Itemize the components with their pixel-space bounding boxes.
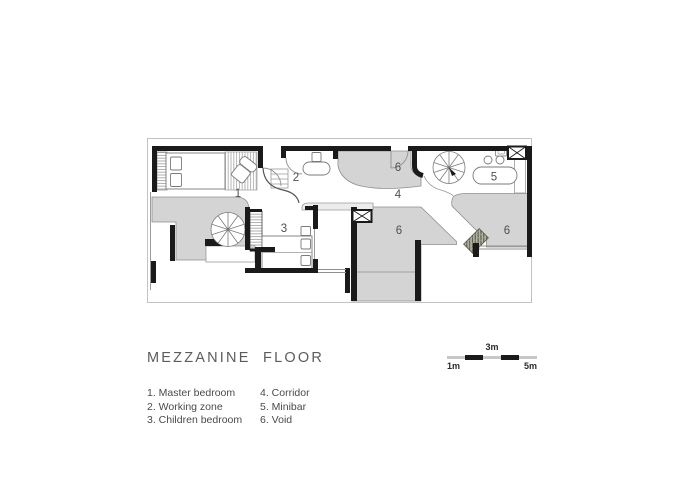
legend-item-corridor: 4. Corridor <box>260 387 310 401</box>
pillow <box>171 157 182 170</box>
wall <box>151 261 156 283</box>
wall <box>305 206 314 210</box>
wall <box>258 146 263 168</box>
wall <box>245 207 250 250</box>
legend: 1. Master bedroom 2. Working zone 3. Chi… <box>147 387 310 428</box>
room-label-minibar: 5 <box>491 172 497 184</box>
legend-item-working-zone: 2. Working zone <box>147 401 260 415</box>
wardrobe-strip-left <box>157 152 167 190</box>
legend-column-1: 1. Master bedroom 2. Working zone 3. Chi… <box>147 387 260 428</box>
legend-column-2: 4. Corridor 5. Minibar 6. Void <box>260 387 310 428</box>
wall <box>245 268 318 273</box>
floor-plan-page: 1 2 3 4 5 6 6 6 MEZZANINE FLOOR 1. Maste… <box>0 0 700 495</box>
void-area-upper <box>338 151 421 189</box>
scale-segment <box>519 356 537 359</box>
wall <box>473 243 479 257</box>
wall <box>345 268 350 293</box>
room-label-corridor: 4 <box>395 189 402 201</box>
wall <box>281 146 338 151</box>
floor-plan-drawing: 1 2 3 4 5 6 6 6 <box>0 0 700 495</box>
scale-segment <box>501 355 519 360</box>
scale-segment <box>465 355 483 360</box>
wall <box>313 259 318 273</box>
desk <box>303 162 330 175</box>
scale-segment <box>483 356 501 359</box>
pillow <box>301 239 311 249</box>
desk-chair <box>312 153 321 162</box>
stool <box>484 156 492 164</box>
page-title: MEZZANINE FLOOR <box>147 350 324 366</box>
shelf <box>301 227 311 236</box>
scale-label-5m: 5m <box>524 361 537 371</box>
legend-item-void: 6. Void <box>260 414 310 428</box>
wall <box>333 146 391 151</box>
room-label-void-center: 6 <box>396 225 402 237</box>
scale-strip <box>447 355 537 360</box>
scale-label-1m: 1m <box>447 361 460 371</box>
scale-segment <box>447 356 465 359</box>
pillow <box>301 256 311 266</box>
legend-item-minibar: 5. Minibar <box>260 401 310 415</box>
void-area-right <box>452 194 531 248</box>
master-bedroom-furniture <box>157 152 258 190</box>
wall <box>313 205 318 229</box>
room-label-void-upper: 6 <box>395 162 401 174</box>
curved-wall <box>415 151 424 176</box>
wall-cap <box>250 209 262 212</box>
wall <box>333 151 338 159</box>
stool <box>496 156 504 164</box>
wall <box>152 146 263 151</box>
scale-bar: 3m 1m 5m <box>447 342 537 372</box>
column-marker <box>353 210 372 222</box>
wall <box>415 240 421 301</box>
column-marker <box>508 147 526 160</box>
pillow <box>171 174 182 187</box>
legend-item-children-bedroom: 3. Children bedroom <box>147 414 260 428</box>
room-label-void-right: 6 <box>504 225 510 237</box>
wall <box>152 146 157 192</box>
legend-item-master-bedroom: 1. Master bedroom <box>147 387 260 401</box>
room-label-working-zone: 2 <box>293 172 299 184</box>
spiral-staircase-right <box>433 152 465 184</box>
room-label-children-bedroom: 3 <box>281 223 287 235</box>
working-zone-furniture <box>271 153 330 189</box>
scale-label-3m: 3m <box>447 342 537 352</box>
wardrobe-strip <box>250 211 262 251</box>
wall <box>527 146 532 257</box>
wall <box>170 225 175 261</box>
room-label-master-bedroom: 1 <box>235 188 241 200</box>
